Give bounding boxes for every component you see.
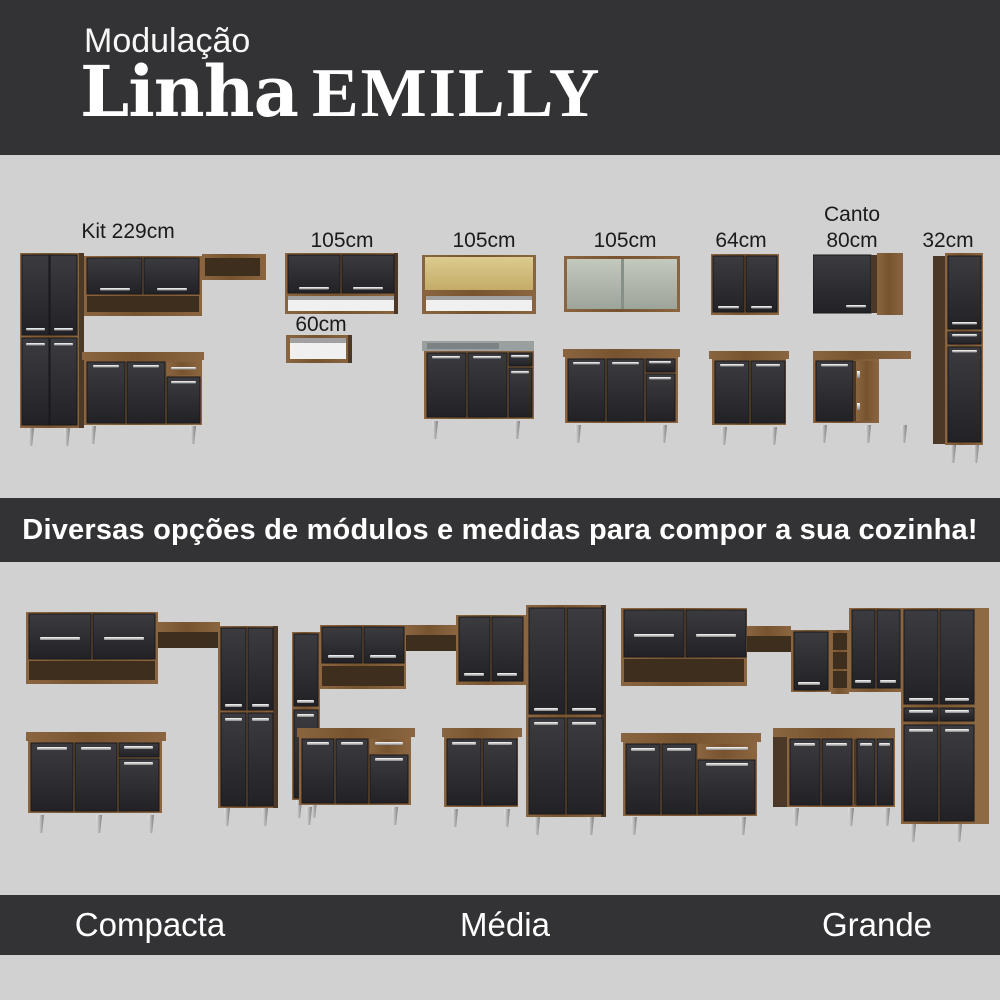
- single-door-wall-cabinet: [791, 630, 831, 692]
- label-wall-105cm: 105cm: [310, 228, 373, 254]
- label-tall-32cm: 32cm: [922, 228, 973, 254]
- tall-cabinet: [20, 253, 84, 446]
- module-tall-32cm: [933, 253, 985, 463]
- kitchen-grande: [618, 602, 994, 897]
- kitchen-name-grande: Grande: [822, 906, 932, 944]
- label-glass-105cm: 105cm: [452, 228, 515, 254]
- wall-cabinet: [320, 625, 406, 689]
- right-wall-cabinet: [456, 615, 526, 685]
- module-wall-64cm: [711, 254, 781, 316]
- kitchens-section: [0, 562, 1000, 895]
- wall-cabinet: [26, 612, 158, 684]
- label-slide-105cm: 105cm: [593, 228, 656, 254]
- corner-shelves: [831, 630, 849, 694]
- tall-cabinet: [218, 626, 278, 826]
- base-cabinet: [82, 352, 204, 444]
- module-canto-wall-80cm: [813, 253, 907, 317]
- kitchen-media: [292, 600, 614, 900]
- module-base-105cm: [563, 349, 681, 451]
- bridge-shelf: [406, 625, 456, 651]
- kitchen-compacta: [18, 600, 313, 900]
- module-canto-base-80cm: [813, 347, 913, 451]
- wall-cabinet: [621, 608, 747, 686]
- left-base-cabinet: [621, 733, 761, 835]
- title-emilly: EMILLY: [312, 55, 602, 132]
- module-glass-105cm: [422, 255, 536, 317]
- kitchen-names-band: Compacta Média Grande: [0, 895, 1000, 955]
- tagline-text: Diversas opções de módulos e medidas par…: [22, 514, 977, 547]
- kitchen-name-compacta: Compacta: [75, 906, 225, 944]
- corner-base-cabinet: [773, 728, 895, 826]
- module-wall-105cm: [285, 253, 400, 317]
- header-band: Modulação LinhaEMILLY: [0, 0, 1000, 155]
- return-wall-cabinet: [849, 608, 901, 692]
- right-base-cabinet: [442, 728, 522, 827]
- base-cabinet: [26, 732, 166, 833]
- module-slide-105cm: [564, 256, 680, 314]
- label-wall-64cm: 64cm: [715, 228, 766, 254]
- top-shelf: [202, 254, 266, 280]
- page-title: LinhaEMILLY: [80, 56, 601, 130]
- module-base-64cm: [709, 351, 791, 451]
- modules-section: Kit 229cm 105cm 105cm 105cm 64cm Canto 8…: [0, 155, 1000, 498]
- page: Modulação LinhaEMILLY Kit 229cm 105cm 10…: [0, 0, 1000, 1000]
- title-linha: Linha: [80, 50, 298, 133]
- right-tall-cabinet: [526, 605, 606, 835]
- tall-cabinet: [901, 608, 989, 842]
- tagline-band: Diversas opções de módulos e medidas par…: [0, 498, 1000, 562]
- bridge-shelf: [158, 622, 220, 648]
- label-canto-80cm: Canto 80cm: [824, 202, 880, 254]
- module-kit-229cm: [20, 250, 270, 455]
- wall-cabinet: [84, 256, 202, 316]
- label-canto-line2: 80cm: [824, 228, 880, 254]
- kitchen-name-media: Média: [460, 906, 550, 944]
- bridge-shelf: [747, 626, 791, 652]
- module-niche-60cm: [286, 335, 354, 365]
- module-sink-base-105cm: [422, 341, 536, 451]
- label-canto-line1: Canto: [824, 202, 880, 228]
- label-kit-229cm: Kit 229cm: [81, 219, 174, 245]
